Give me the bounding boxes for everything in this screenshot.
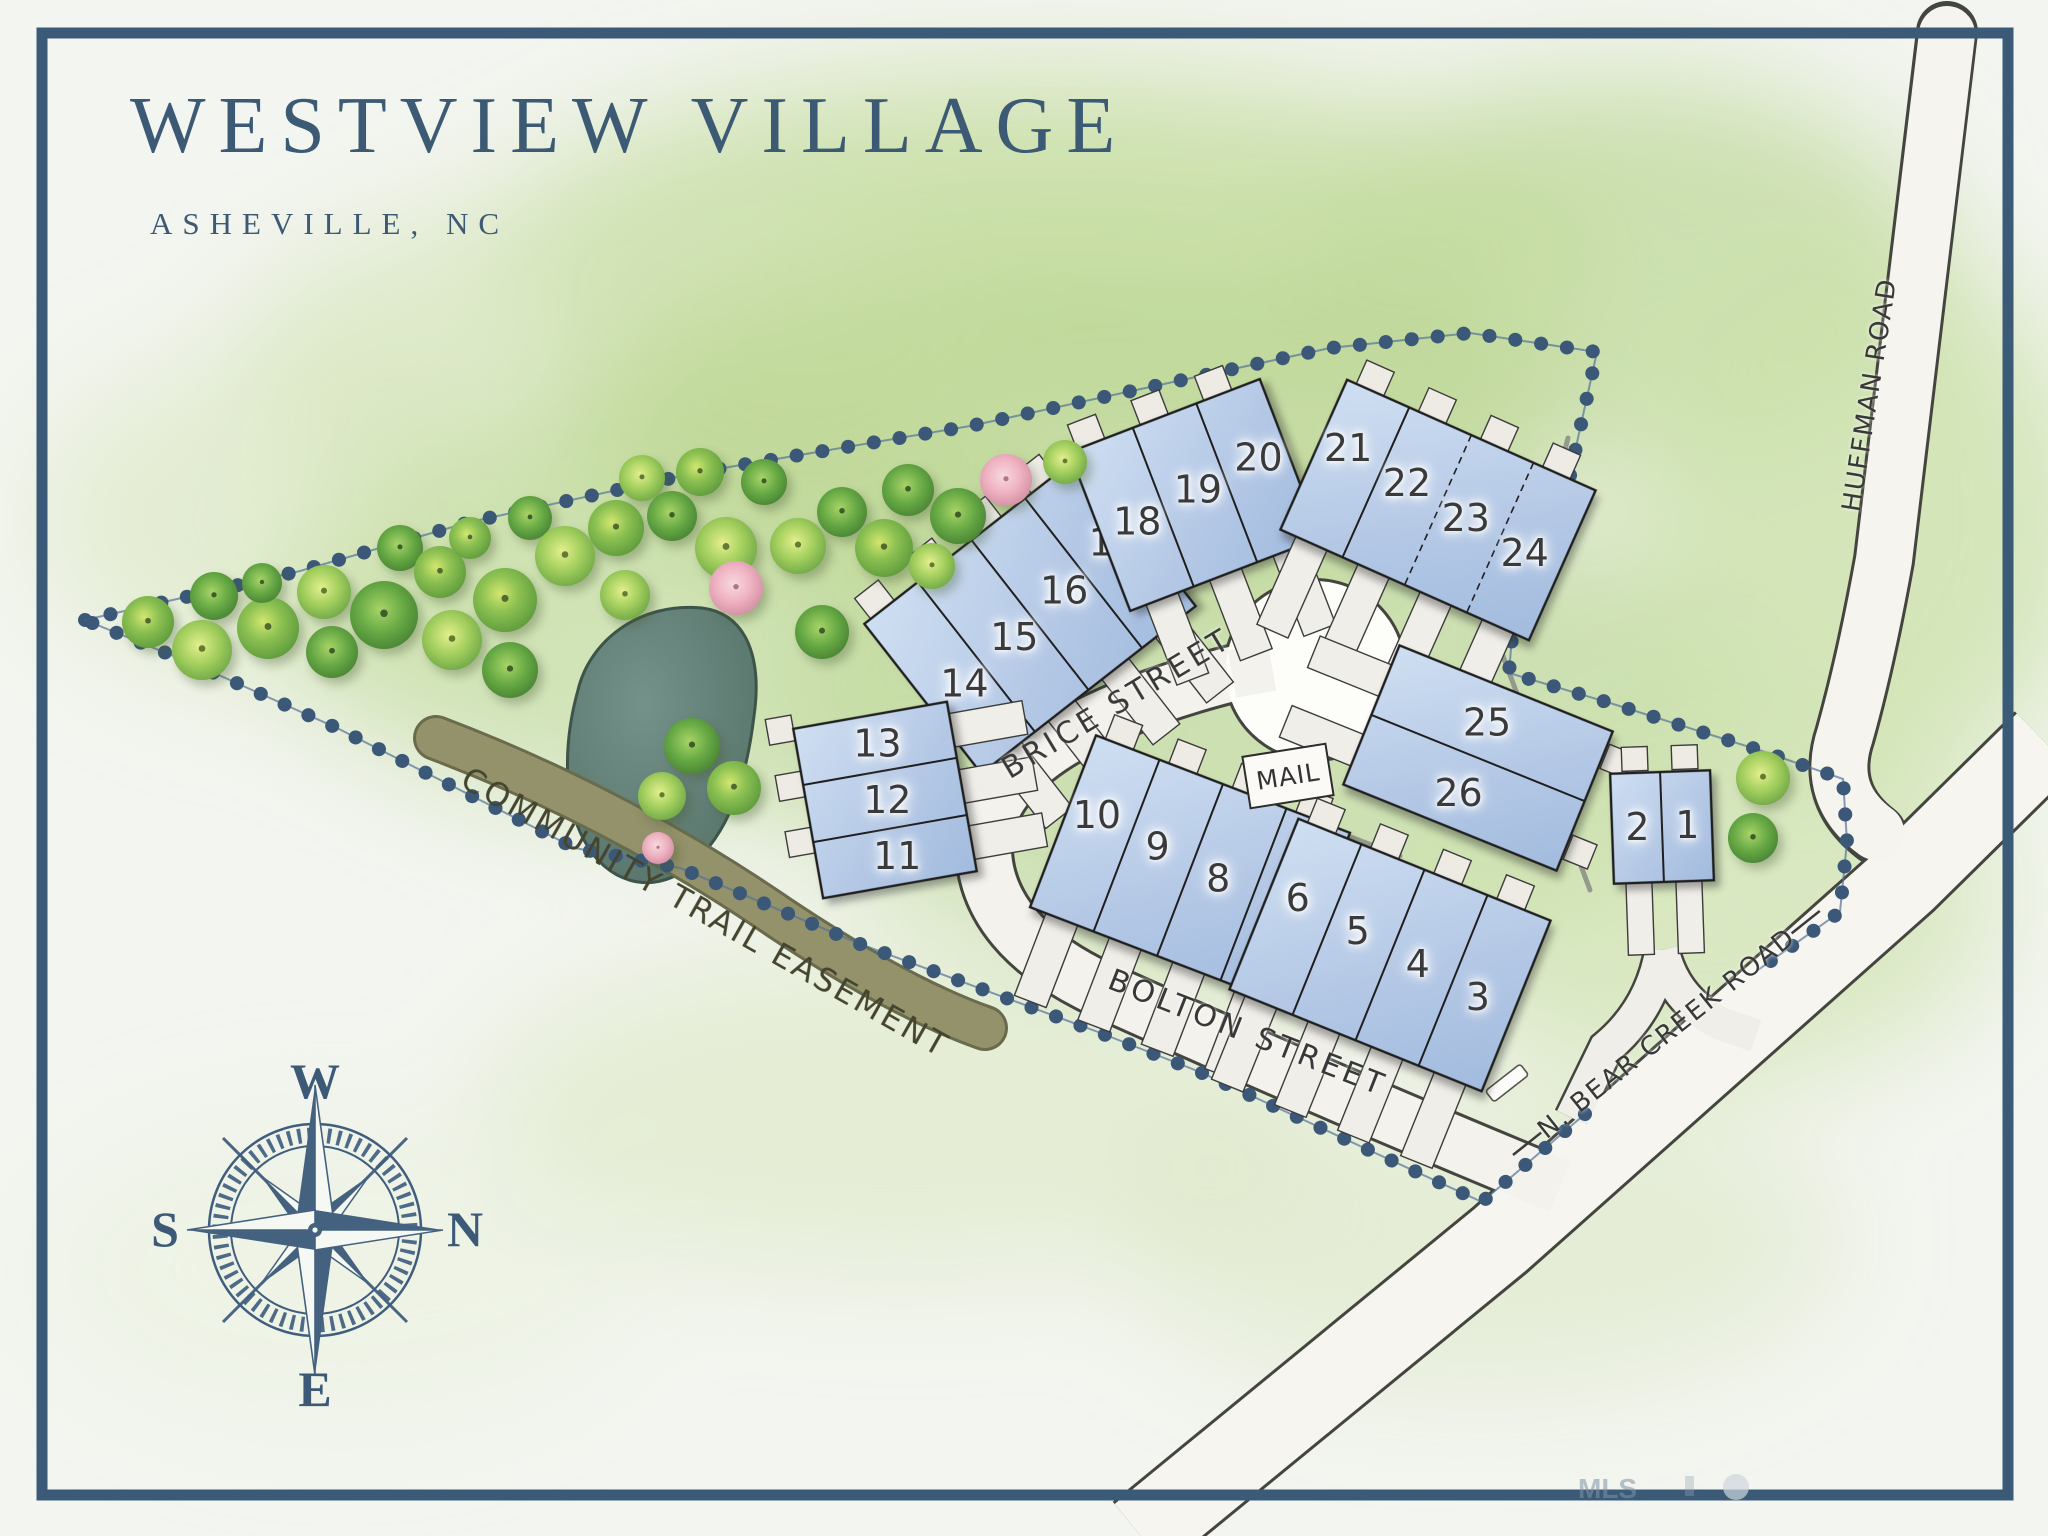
lot-number: 18	[1113, 499, 1161, 543]
watermark-glyph	[1685, 1476, 1694, 1496]
tree	[882, 464, 934, 516]
tree	[172, 620, 232, 680]
tree	[930, 488, 986, 544]
lot-number: 24	[1500, 531, 1548, 575]
lot-number: 15	[990, 615, 1038, 659]
lot-number: 20	[1234, 436, 1282, 480]
lot-number: 21	[1324, 426, 1372, 470]
plan-title: WESTVIEW VILLAGE	[130, 82, 1128, 170]
tree	[237, 597, 299, 659]
tree	[707, 761, 761, 815]
tree	[473, 568, 537, 632]
lot-number: 2	[1625, 805, 1649, 849]
tree	[449, 517, 491, 559]
compass-letter-south: S	[151, 1201, 179, 1257]
lot-number: 25	[1463, 701, 1511, 745]
tree	[1043, 440, 1087, 484]
tree	[741, 459, 787, 505]
lot-number: 19	[1174, 467, 1222, 511]
lot-number: 26	[1434, 771, 1482, 815]
lot-number: 1	[1675, 803, 1699, 847]
lot-number: 14	[940, 662, 988, 706]
tree	[600, 570, 650, 620]
tree	[647, 491, 697, 541]
lot-number: 22	[1383, 461, 1431, 505]
tree	[909, 543, 955, 589]
tree	[588, 500, 644, 556]
tree	[795, 605, 849, 659]
map-canvas: 14 15 16 17 18 19 20 21 22 23 24	[0, 0, 2048, 1536]
compass-letter-west: W	[290, 1053, 340, 1109]
tree	[190, 572, 238, 620]
watermark-glyph	[1723, 1474, 1749, 1500]
lot-number: 5	[1346, 909, 1370, 953]
tree	[350, 581, 418, 649]
tree	[1728, 813, 1778, 863]
lot-number: 11	[873, 834, 921, 878]
tree	[422, 610, 482, 670]
lot-number: 9	[1145, 825, 1169, 869]
tree	[817, 487, 867, 537]
lot-number: 12	[863, 778, 911, 822]
tree	[297, 565, 351, 619]
tree	[855, 519, 913, 577]
flowering-tree	[709, 561, 763, 615]
lot-number: 10	[1073, 793, 1121, 837]
lot-number: 6	[1286, 876, 1310, 920]
tree	[619, 455, 665, 501]
cul-de-sac-throat	[1232, 667, 1272, 674]
mls-watermark-text: MLS	[1578, 1473, 1637, 1504]
tree	[638, 772, 686, 820]
site-plan-page: 14 15 16 17 18 19 20 21 22 23 24	[0, 0, 2048, 1536]
tree	[482, 642, 538, 698]
tree	[122, 596, 174, 648]
flowering-tree	[980, 454, 1032, 506]
tree	[676, 448, 724, 496]
lot-number: 4	[1406, 942, 1430, 986]
plan-subtitle: ASHEVILLE, NC	[150, 206, 509, 241]
compass-letter-north: N	[447, 1201, 483, 1257]
tree	[242, 563, 282, 603]
tree	[770, 518, 826, 574]
lot-number: 13	[853, 722, 901, 766]
lot-number: 23	[1442, 496, 1490, 540]
tree	[535, 526, 595, 586]
lot-number: 8	[1206, 857, 1230, 901]
lot-number: 16	[1040, 569, 1088, 613]
lot-number: 3	[1466, 975, 1490, 1019]
compass-hub-dot	[312, 1227, 317, 1232]
tree	[1736, 751, 1790, 805]
tree	[664, 718, 720, 774]
compass-letter-east: E	[298, 1361, 331, 1417]
tree	[306, 626, 358, 678]
